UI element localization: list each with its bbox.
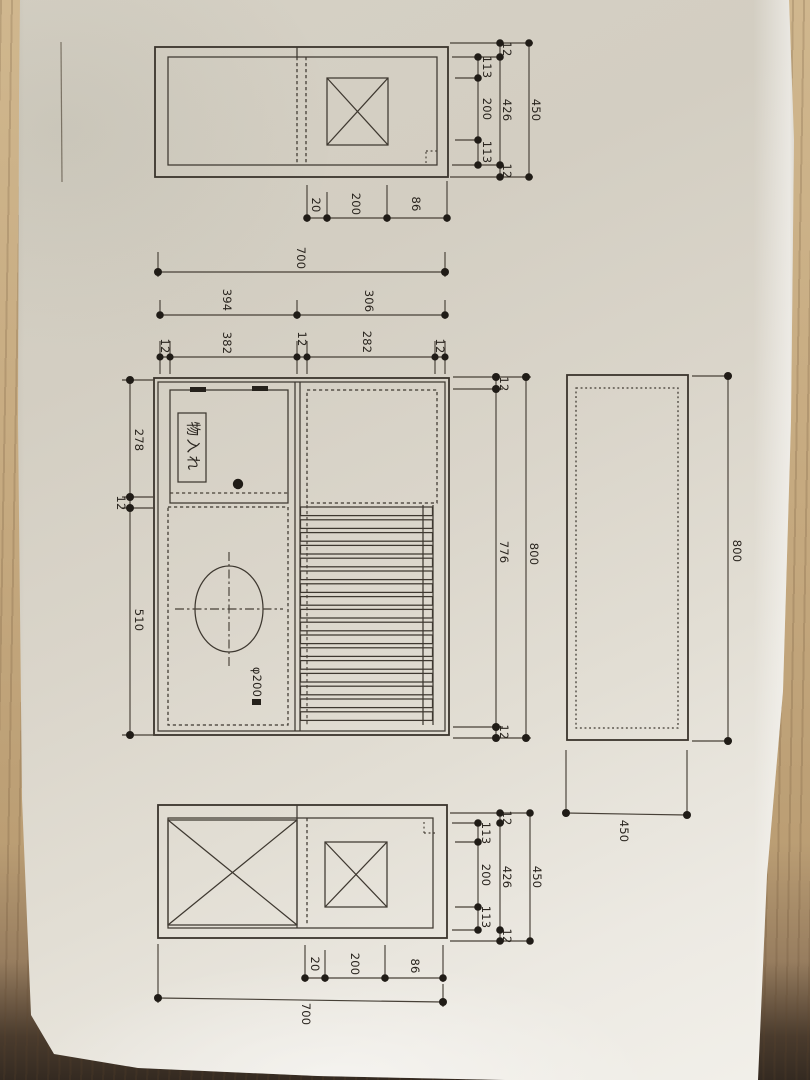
dim-label: 200 bbox=[480, 98, 494, 121]
dim-label: 278 bbox=[132, 429, 146, 452]
slat-grate bbox=[301, 505, 434, 725]
dim-label-total: 700 bbox=[294, 247, 308, 270]
hinge-mark bbox=[190, 387, 206, 392]
dim-label: 12 bbox=[497, 724, 511, 739]
dim-label: 394 bbox=[220, 289, 234, 312]
counter-dashed-outline bbox=[168, 507, 288, 725]
dim-label: 86 bbox=[409, 196, 423, 211]
dim-label: 12 bbox=[500, 163, 514, 178]
hole-cross-brace bbox=[327, 78, 388, 145]
dim-label: 12 bbox=[497, 376, 511, 391]
storage-label: 物入れ bbox=[184, 422, 201, 473]
dim-label: 426 bbox=[500, 866, 514, 889]
photo-of-technical-drawing: 113 200 113 12 426 12 450 20 200 86 bbox=[0, 0, 810, 1080]
dim-label: 510 bbox=[132, 609, 146, 632]
cad-drawing: 113 200 113 12 426 12 450 20 200 86 bbox=[0, 0, 810, 1080]
dashed-corner-mark bbox=[426, 151, 437, 163]
dim-label: 20 bbox=[308, 956, 322, 971]
large-cross-brace bbox=[168, 820, 297, 925]
dim-label: 12 bbox=[500, 928, 514, 943]
dim-label: 12 bbox=[433, 338, 447, 353]
knob-dot bbox=[233, 479, 243, 489]
dim-label: 113 bbox=[480, 56, 494, 79]
dim-label: 86 bbox=[408, 958, 422, 973]
dim-label: 113 bbox=[480, 141, 494, 164]
side-dashed-outline bbox=[576, 388, 678, 728]
dim-label: 306 bbox=[362, 290, 376, 313]
dim-label-total: 450 bbox=[530, 866, 544, 889]
hinge-mark bbox=[252, 386, 268, 391]
dim-label: 20 bbox=[309, 197, 323, 212]
dim-label-total: 800 bbox=[730, 540, 744, 563]
hole-diameter-label: φ200 bbox=[250, 667, 264, 697]
dim-label: 200 bbox=[348, 953, 362, 976]
dim-label-total: 800 bbox=[527, 543, 541, 566]
dim-label: 200 bbox=[479, 864, 493, 887]
dim-label: 113 bbox=[479, 906, 493, 929]
dim-label: 12 bbox=[158, 338, 172, 353]
edge-tick-mark bbox=[252, 699, 261, 705]
side-view-dimensions: 800 450 bbox=[562, 372, 744, 842]
dim-label: 12 bbox=[500, 810, 514, 825]
dim-label: 12 bbox=[114, 495, 128, 510]
plan-view: 物入れ φ200 bbox=[154, 378, 449, 735]
side-view bbox=[567, 375, 688, 740]
top-view bbox=[155, 47, 448, 177]
dim-label: 12 bbox=[500, 41, 514, 56]
paper-crease-line bbox=[61, 42, 62, 182]
dim-label: 776 bbox=[497, 541, 511, 564]
dim-label-total: 450 bbox=[617, 820, 631, 843]
dim-label: 426 bbox=[500, 99, 514, 122]
dim-label: 12 bbox=[295, 331, 309, 346]
dim-label-total: 700 bbox=[299, 1003, 313, 1026]
dim-label: 282 bbox=[360, 331, 374, 354]
dim-label: 113 bbox=[479, 822, 493, 845]
top-view-dimensions: 113 200 113 12 426 12 450 20 200 86 bbox=[154, 39, 543, 374]
bottom-view bbox=[158, 805, 447, 938]
void-dashed-outline bbox=[307, 390, 437, 503]
dim-label: 200 bbox=[349, 193, 363, 216]
dim-label: 382 bbox=[220, 332, 234, 355]
dim-label-total: 450 bbox=[529, 99, 543, 122]
hole-cross-brace bbox=[325, 842, 387, 907]
